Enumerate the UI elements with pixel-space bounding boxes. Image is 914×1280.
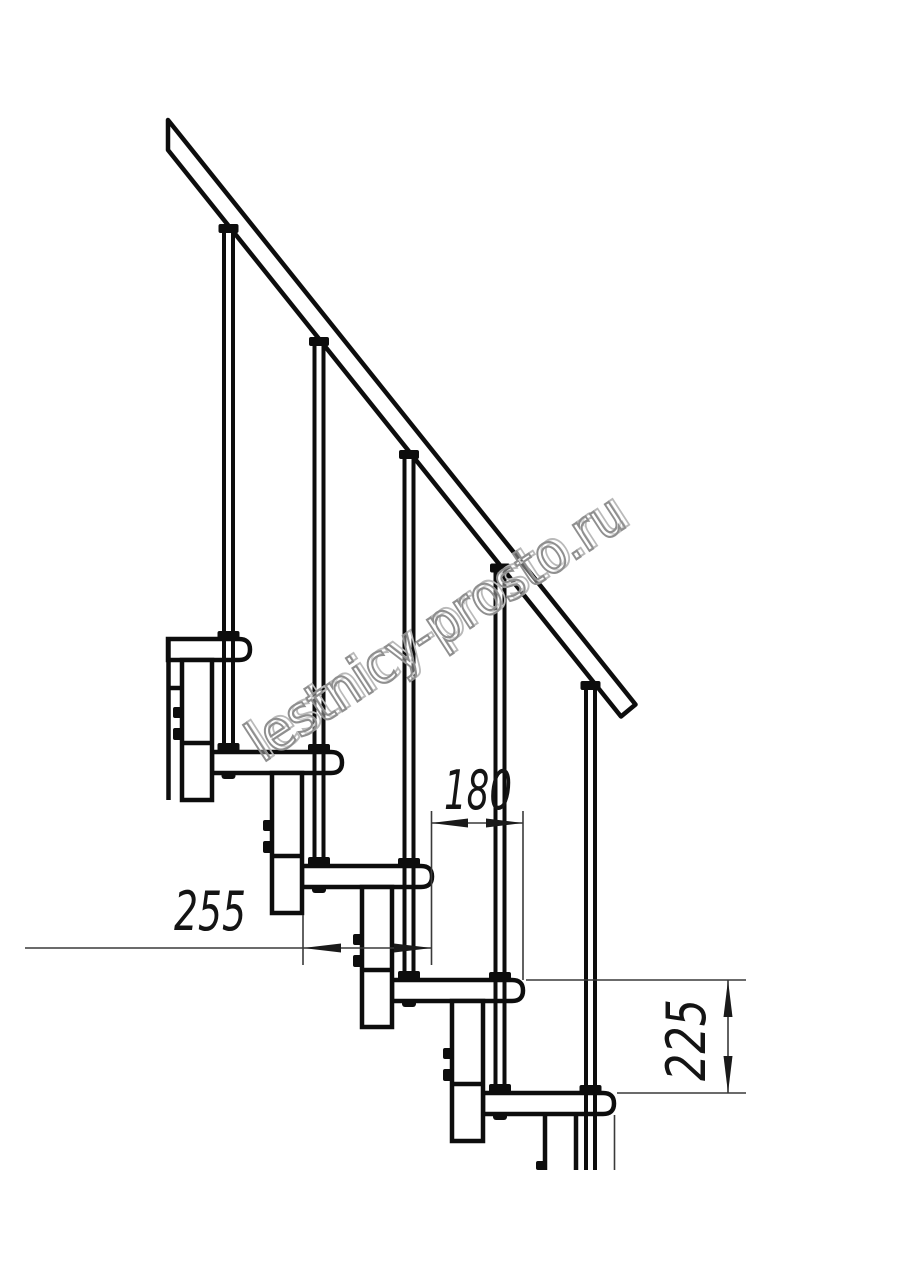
bolt: [353, 934, 364, 945]
dimension-label-225: 225: [655, 999, 718, 1081]
column-5-cropped: [545, 1114, 576, 1170]
tread-collar-1: [218, 631, 240, 640]
bolt: [263, 841, 274, 853]
tread-1: [168, 639, 250, 660]
bolt: [173, 728, 184, 740]
arrowhead-left: [303, 944, 341, 953]
bolt: [443, 1069, 454, 1081]
drawing-page: 255 180 225 lestnicy-prosto.ru lestnicy-…: [0, 0, 914, 1280]
column-3: [362, 887, 392, 1027]
column-1: [182, 660, 212, 800]
bolt: [536, 1161, 547, 1170]
baluster-3: [405, 451, 414, 980]
tread-collar-4: [489, 972, 511, 981]
column-2: [272, 773, 302, 913]
dimension-step-run: 180: [431, 759, 523, 980]
rail-collar-2: [309, 337, 329, 346]
column-5-bolts: [536, 1161, 547, 1170]
under-tread-nut-3: [402, 999, 416, 1007]
column-4: [452, 1001, 483, 1141]
watermark: lestnicy-prosto.ru lestnicy-prosto.ru: [235, 479, 642, 775]
baluster-2: [315, 339, 324, 866]
dimension-step-rise: 225: [526, 980, 746, 1170]
tread-collar-5: [580, 1085, 602, 1094]
dimension-label-255: 255: [174, 880, 246, 943]
bolt: [353, 955, 364, 967]
baluster-4: [496, 565, 505, 1093]
dimension-label-180: 180: [444, 759, 512, 822]
base-collar-3: [398, 971, 420, 981]
baluster-1: [224, 226, 233, 753]
rail-collar-1: [219, 224, 239, 233]
under-tread-nut-2: [312, 885, 326, 893]
tread-collar-3: [398, 858, 420, 867]
bolt: [443, 1048, 454, 1059]
rail-collar-3: [399, 450, 419, 459]
base-collar-1: [218, 743, 240, 753]
modular-stairs-side-view-drawing: 255 180 225 lestnicy-prosto.ru lestnicy-…: [0, 0, 914, 1280]
under-tread-nut-4: [493, 1112, 507, 1120]
base-collar-4: [489, 1084, 511, 1094]
arrowhead-bottom: [724, 1056, 733, 1093]
rail-collar-5: [581, 681, 601, 690]
bolt: [173, 707, 184, 718]
under-tread-nut-1: [222, 771, 236, 779]
bolt: [263, 820, 274, 831]
arrowhead-top: [724, 980, 733, 1017]
base-collar-2: [308, 857, 330, 867]
